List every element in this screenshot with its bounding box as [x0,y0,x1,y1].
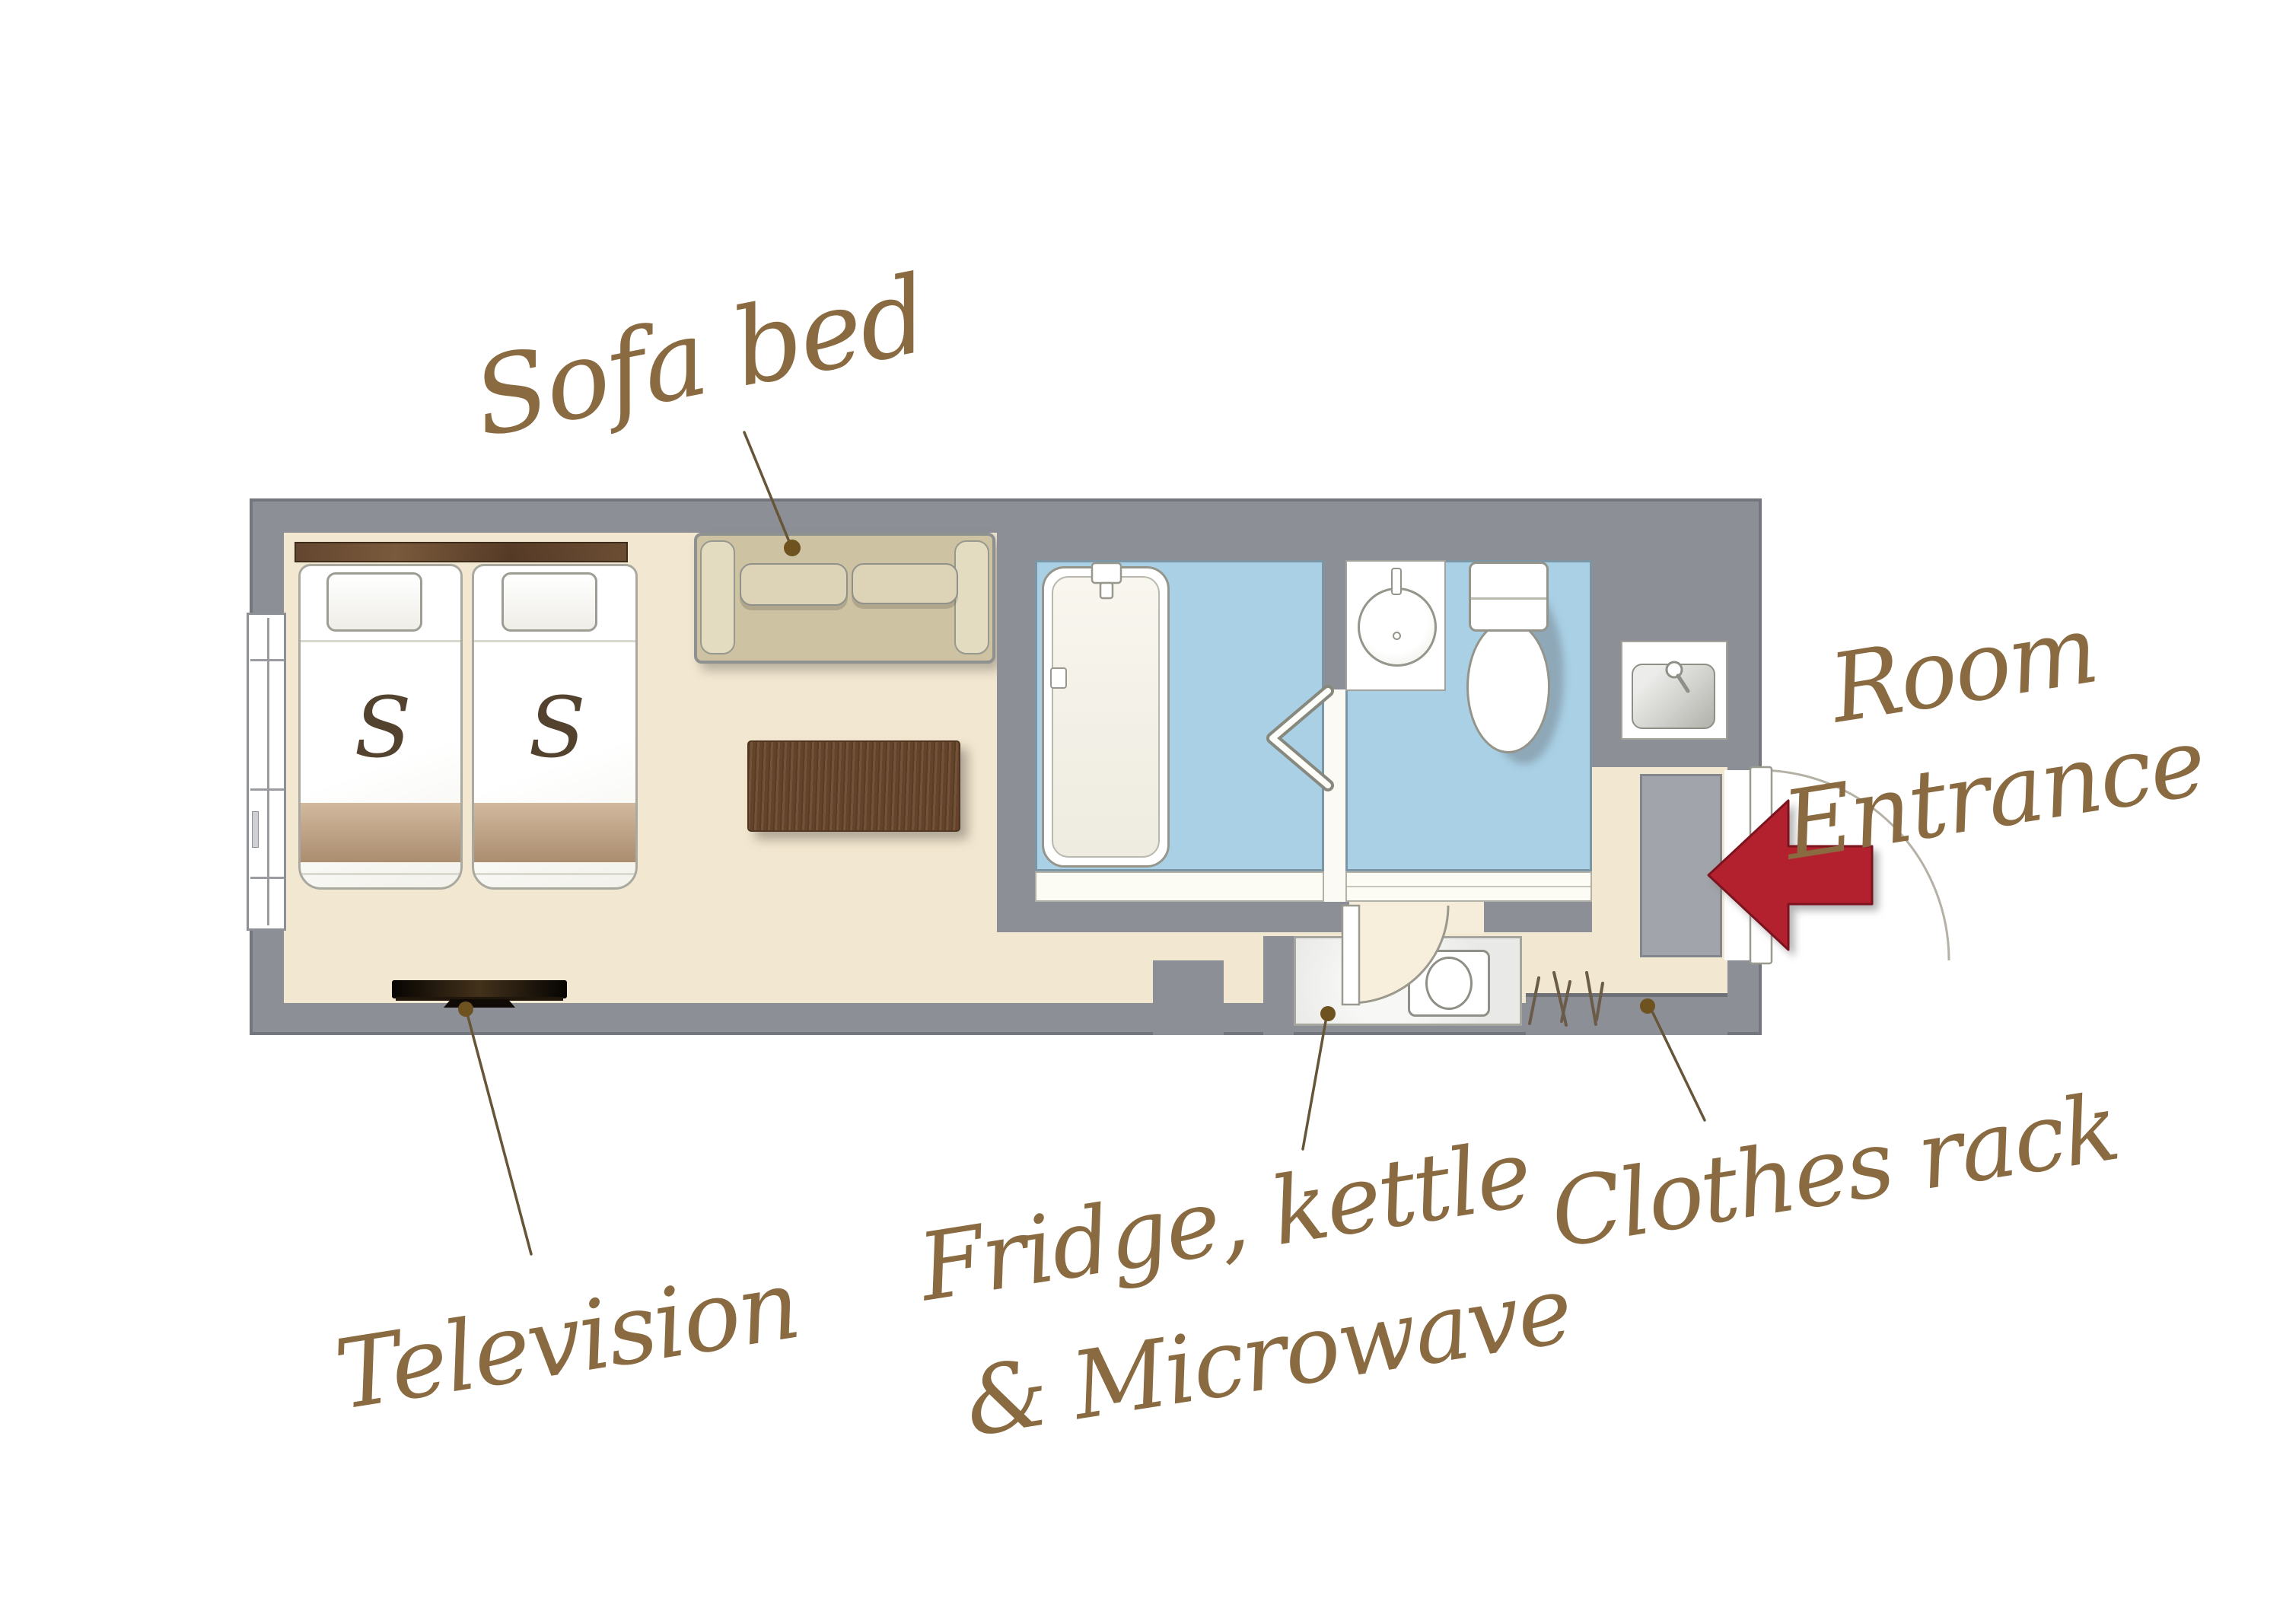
television-label: Television [315,1254,819,1426]
floor-plan: S S [0,0,2283,1624]
pillow-icon [501,572,597,632]
sofa-armrest [954,540,989,654]
toilet-tank-icon [1469,562,1549,632]
vanity-counter [1621,641,1727,740]
television-stand [444,999,515,1008]
sofa-bed-icon [694,533,995,664]
vanity-sink-icon [1632,664,1715,729]
wall-step [1153,960,1224,1035]
coffee-table-icon [747,740,960,832]
toilet-bowl-icon [1466,620,1550,753]
sofa-cushion [852,563,958,604]
pillow-icon [326,572,422,632]
washbasin-icon [1358,588,1437,667]
clothes-rack-icon [1526,993,1727,1035]
headboard-icon [295,542,628,562]
sofa-armrest [700,540,735,654]
washbasin-faucet-icon [1391,568,1402,595]
bathroom-door-opening [1324,689,1345,902]
toilet-threshold [1345,871,1592,902]
sofa-bed-label: Sofa bed [421,253,979,463]
entrance-mat [1640,774,1722,957]
washbasin-counter [1345,560,1446,691]
bathroom-threshold [1035,871,1324,902]
floor-plan-page: { "annotations": { "sofa_bed": "Sofa bed… [0,0,2283,1624]
bed-size-label: S [301,679,463,776]
niche-wall [1263,936,1294,1035]
bed-size-label: S [474,679,638,776]
toilet-doorway [1349,902,1484,934]
clothes-rack-label: Clothes rack [1545,1084,2100,1261]
television-icon [392,980,567,998]
window-icon [247,613,286,931]
bathtub-icon [1042,566,1170,868]
entrance-opening [1724,770,1762,960]
sofa-cushion [740,563,848,606]
microwave-icon [1408,950,1490,1017]
